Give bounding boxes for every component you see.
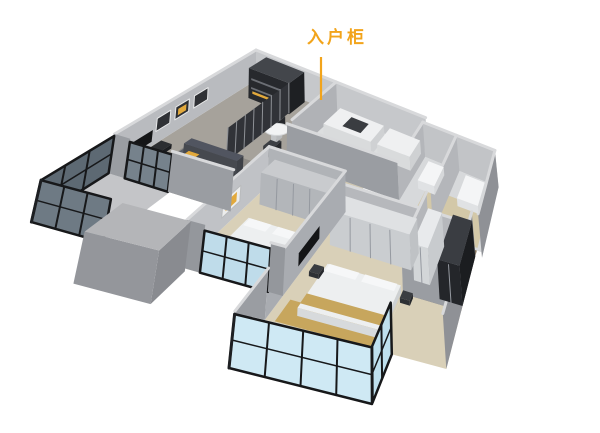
annotation-label: 入户柜 xyxy=(307,27,367,47)
apartment-3d-floorplan: 入户柜 xyxy=(0,0,600,433)
page-background: 入户柜 xyxy=(0,0,600,433)
floorplan-scene xyxy=(31,50,498,404)
